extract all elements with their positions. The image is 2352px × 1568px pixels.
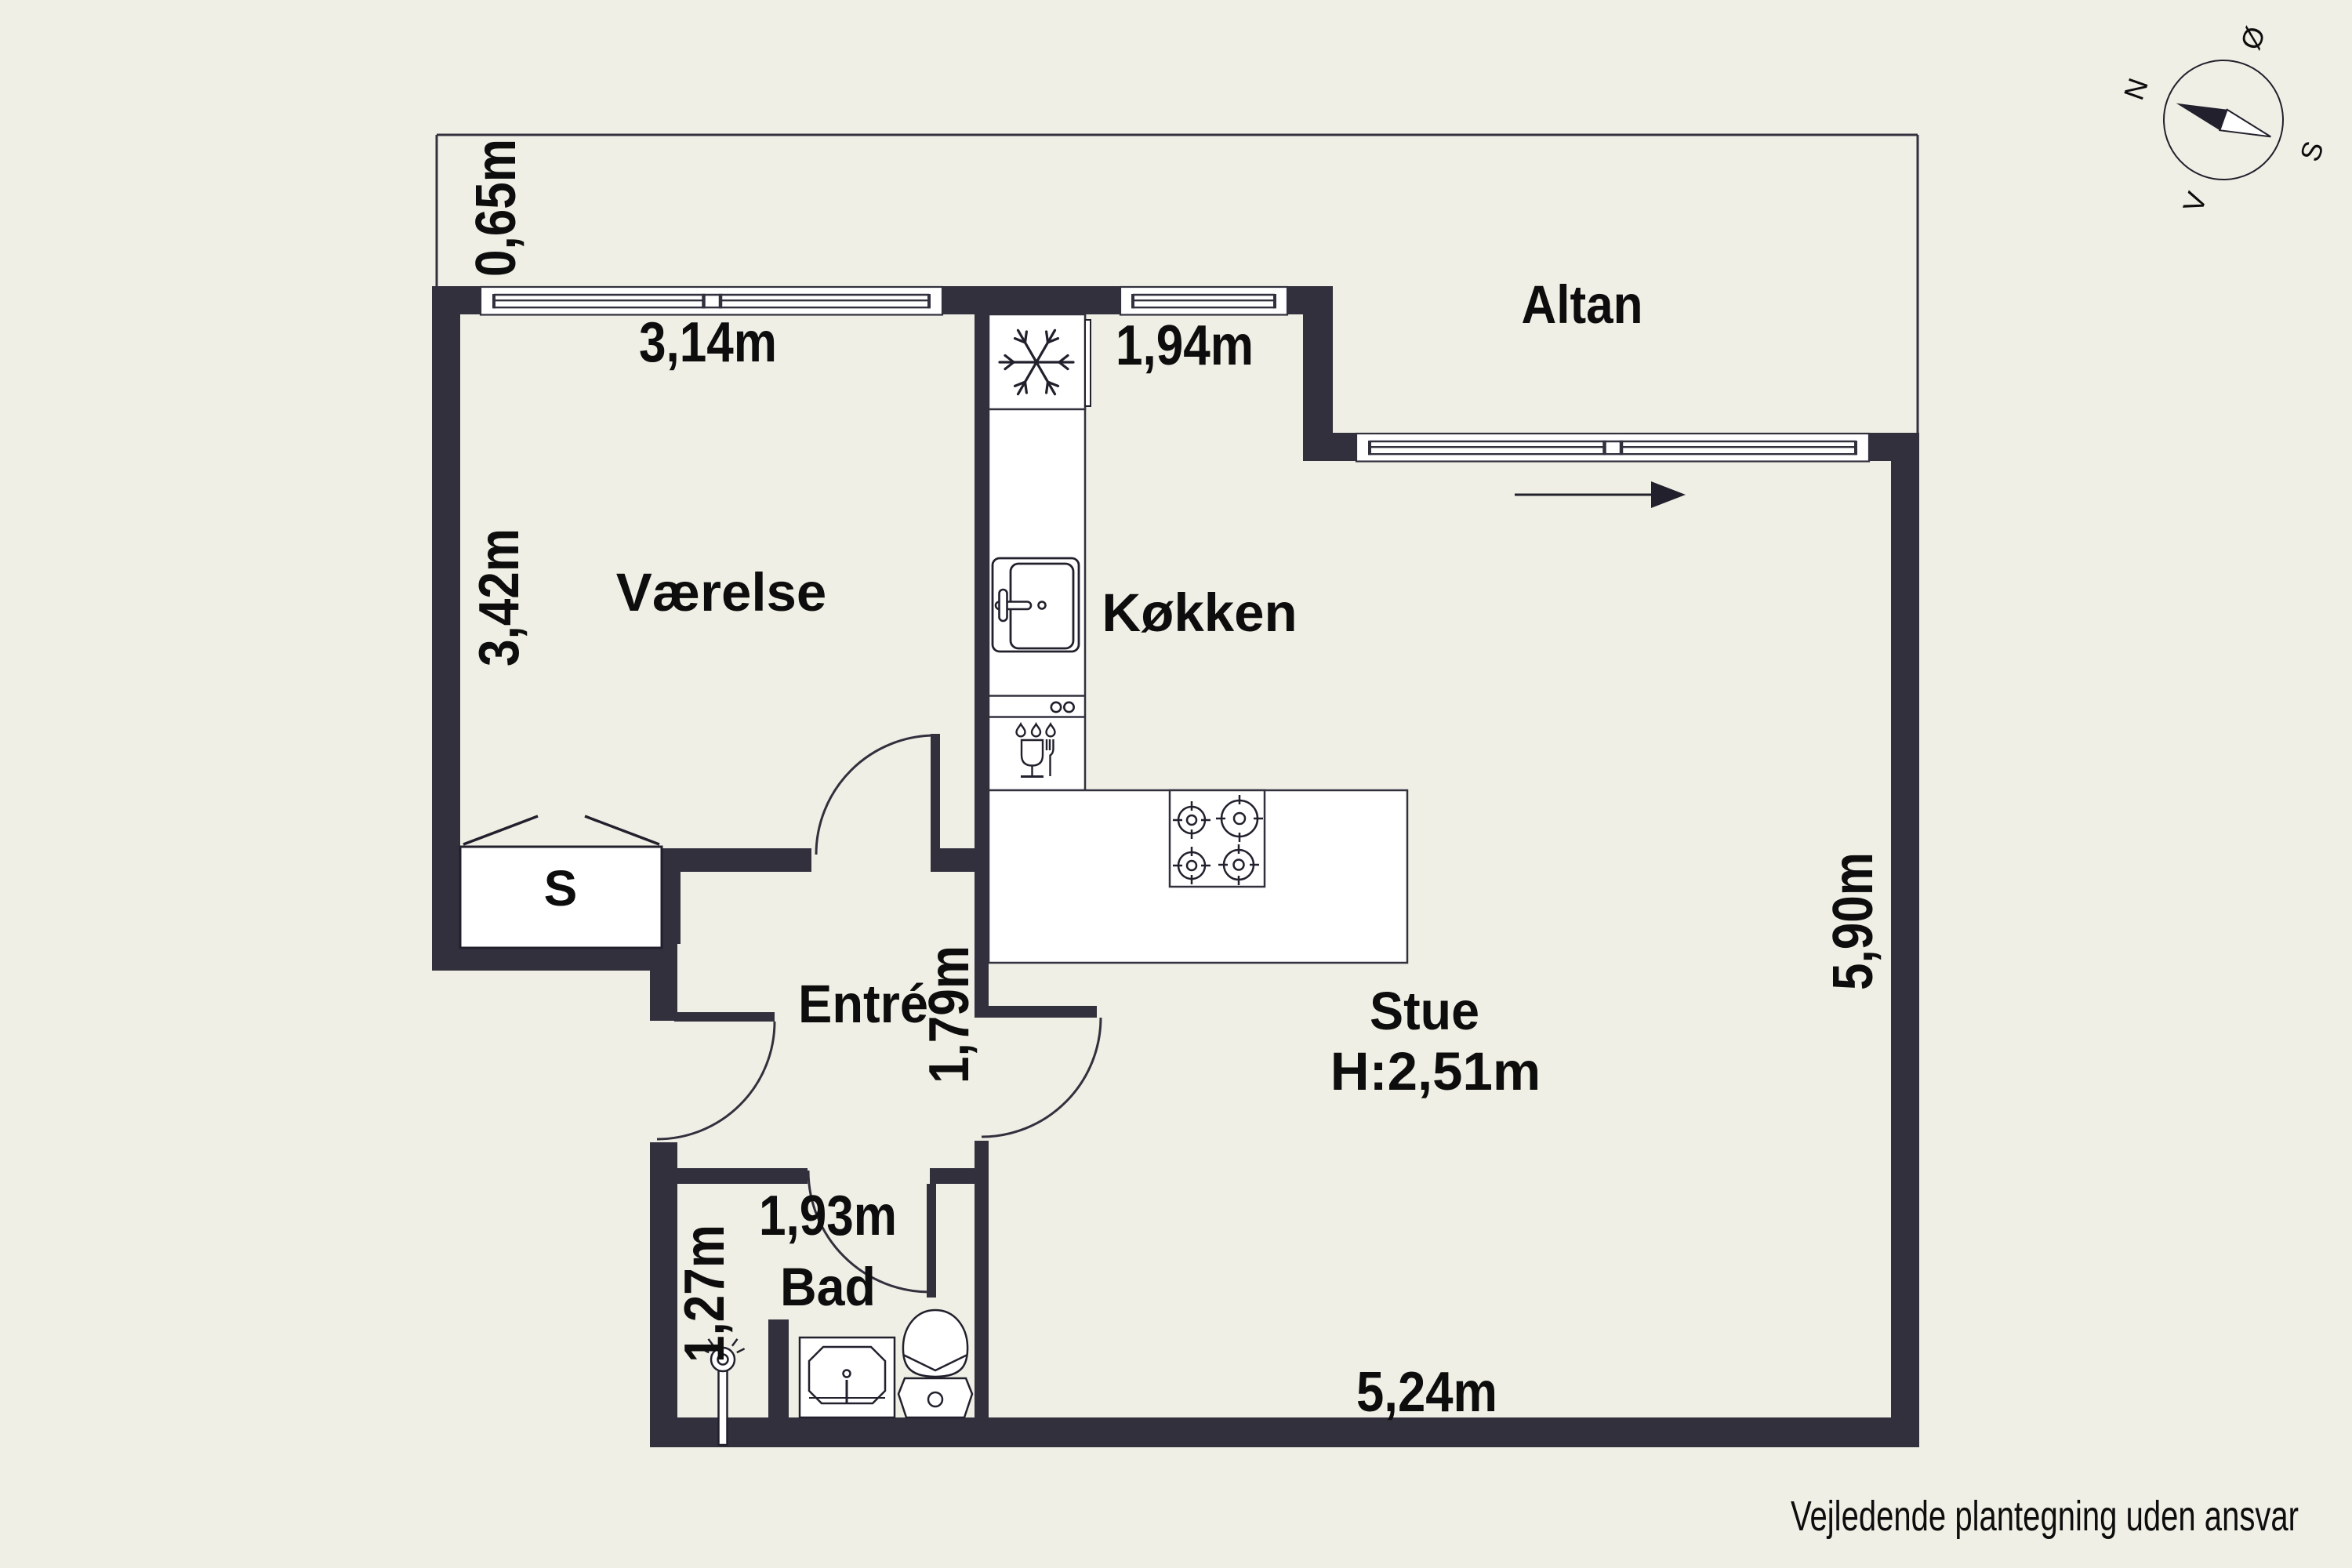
svg-text:Køkken: Køkken <box>1102 583 1297 643</box>
svg-text:1,93m: 1,93m <box>759 1185 897 1247</box>
svg-text:Vejledende plantegning uden an: Vejledende plantegning uden ansvar <box>1791 1493 2299 1540</box>
svg-text:0,65m: 0,65m <box>465 139 528 277</box>
svg-text:S: S <box>544 860 578 916</box>
svg-text:3,42m: 3,42m <box>468 528 531 666</box>
svg-text:Stue: Stue <box>1370 981 1479 1041</box>
svg-text:5,90m: 5,90m <box>1822 852 1885 990</box>
svg-text:1,94m: 1,94m <box>1116 314 1254 377</box>
svg-text:Altan: Altan <box>1522 274 1643 335</box>
svg-text:1,27m: 1,27m <box>673 1225 736 1363</box>
svg-text:1,79m: 1,79m <box>918 946 981 1083</box>
svg-text:3,14m: 3,14m <box>639 311 777 374</box>
svg-text:Entré: Entré <box>798 974 928 1034</box>
svg-text:Bad: Bad <box>780 1257 876 1317</box>
svg-text:5,24m: 5,24m <box>1356 1361 1497 1424</box>
svg-text:H:2,51m: H:2,51m <box>1330 1041 1541 1102</box>
svg-text:Værelse: Værelse <box>616 562 827 622</box>
